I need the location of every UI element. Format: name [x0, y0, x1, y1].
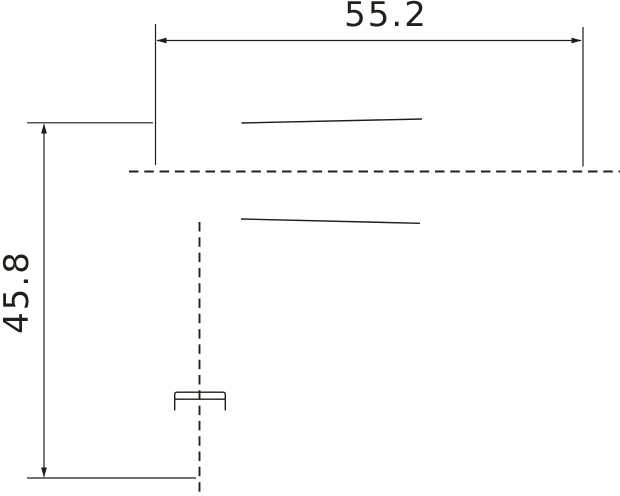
- spout-bottom-edge: [241, 219, 420, 223]
- vertical-dimension: 45.8: [0, 123, 196, 478]
- centerlines: [129, 172, 620, 496]
- width-dimension-label: 55.2: [344, 0, 428, 35]
- faucet-dimension-drawing: 55.2 45.8: [0, 0, 620, 496]
- dimension-arrow-up-icon: [41, 124, 47, 134]
- horizontal-dimension: 55.2: [156, 0, 584, 167]
- technical-drawing-canvas: 55.2 45.8: [0, 0, 620, 496]
- height-dimension-label: 45.8: [0, 250, 37, 334]
- dimension-arrow-left-icon: [157, 38, 167, 44]
- dimension-arrow-right-icon: [572, 38, 582, 44]
- dimension-arrow-down-icon: [41, 468, 47, 478]
- spout-top-edge: [242, 119, 423, 123]
